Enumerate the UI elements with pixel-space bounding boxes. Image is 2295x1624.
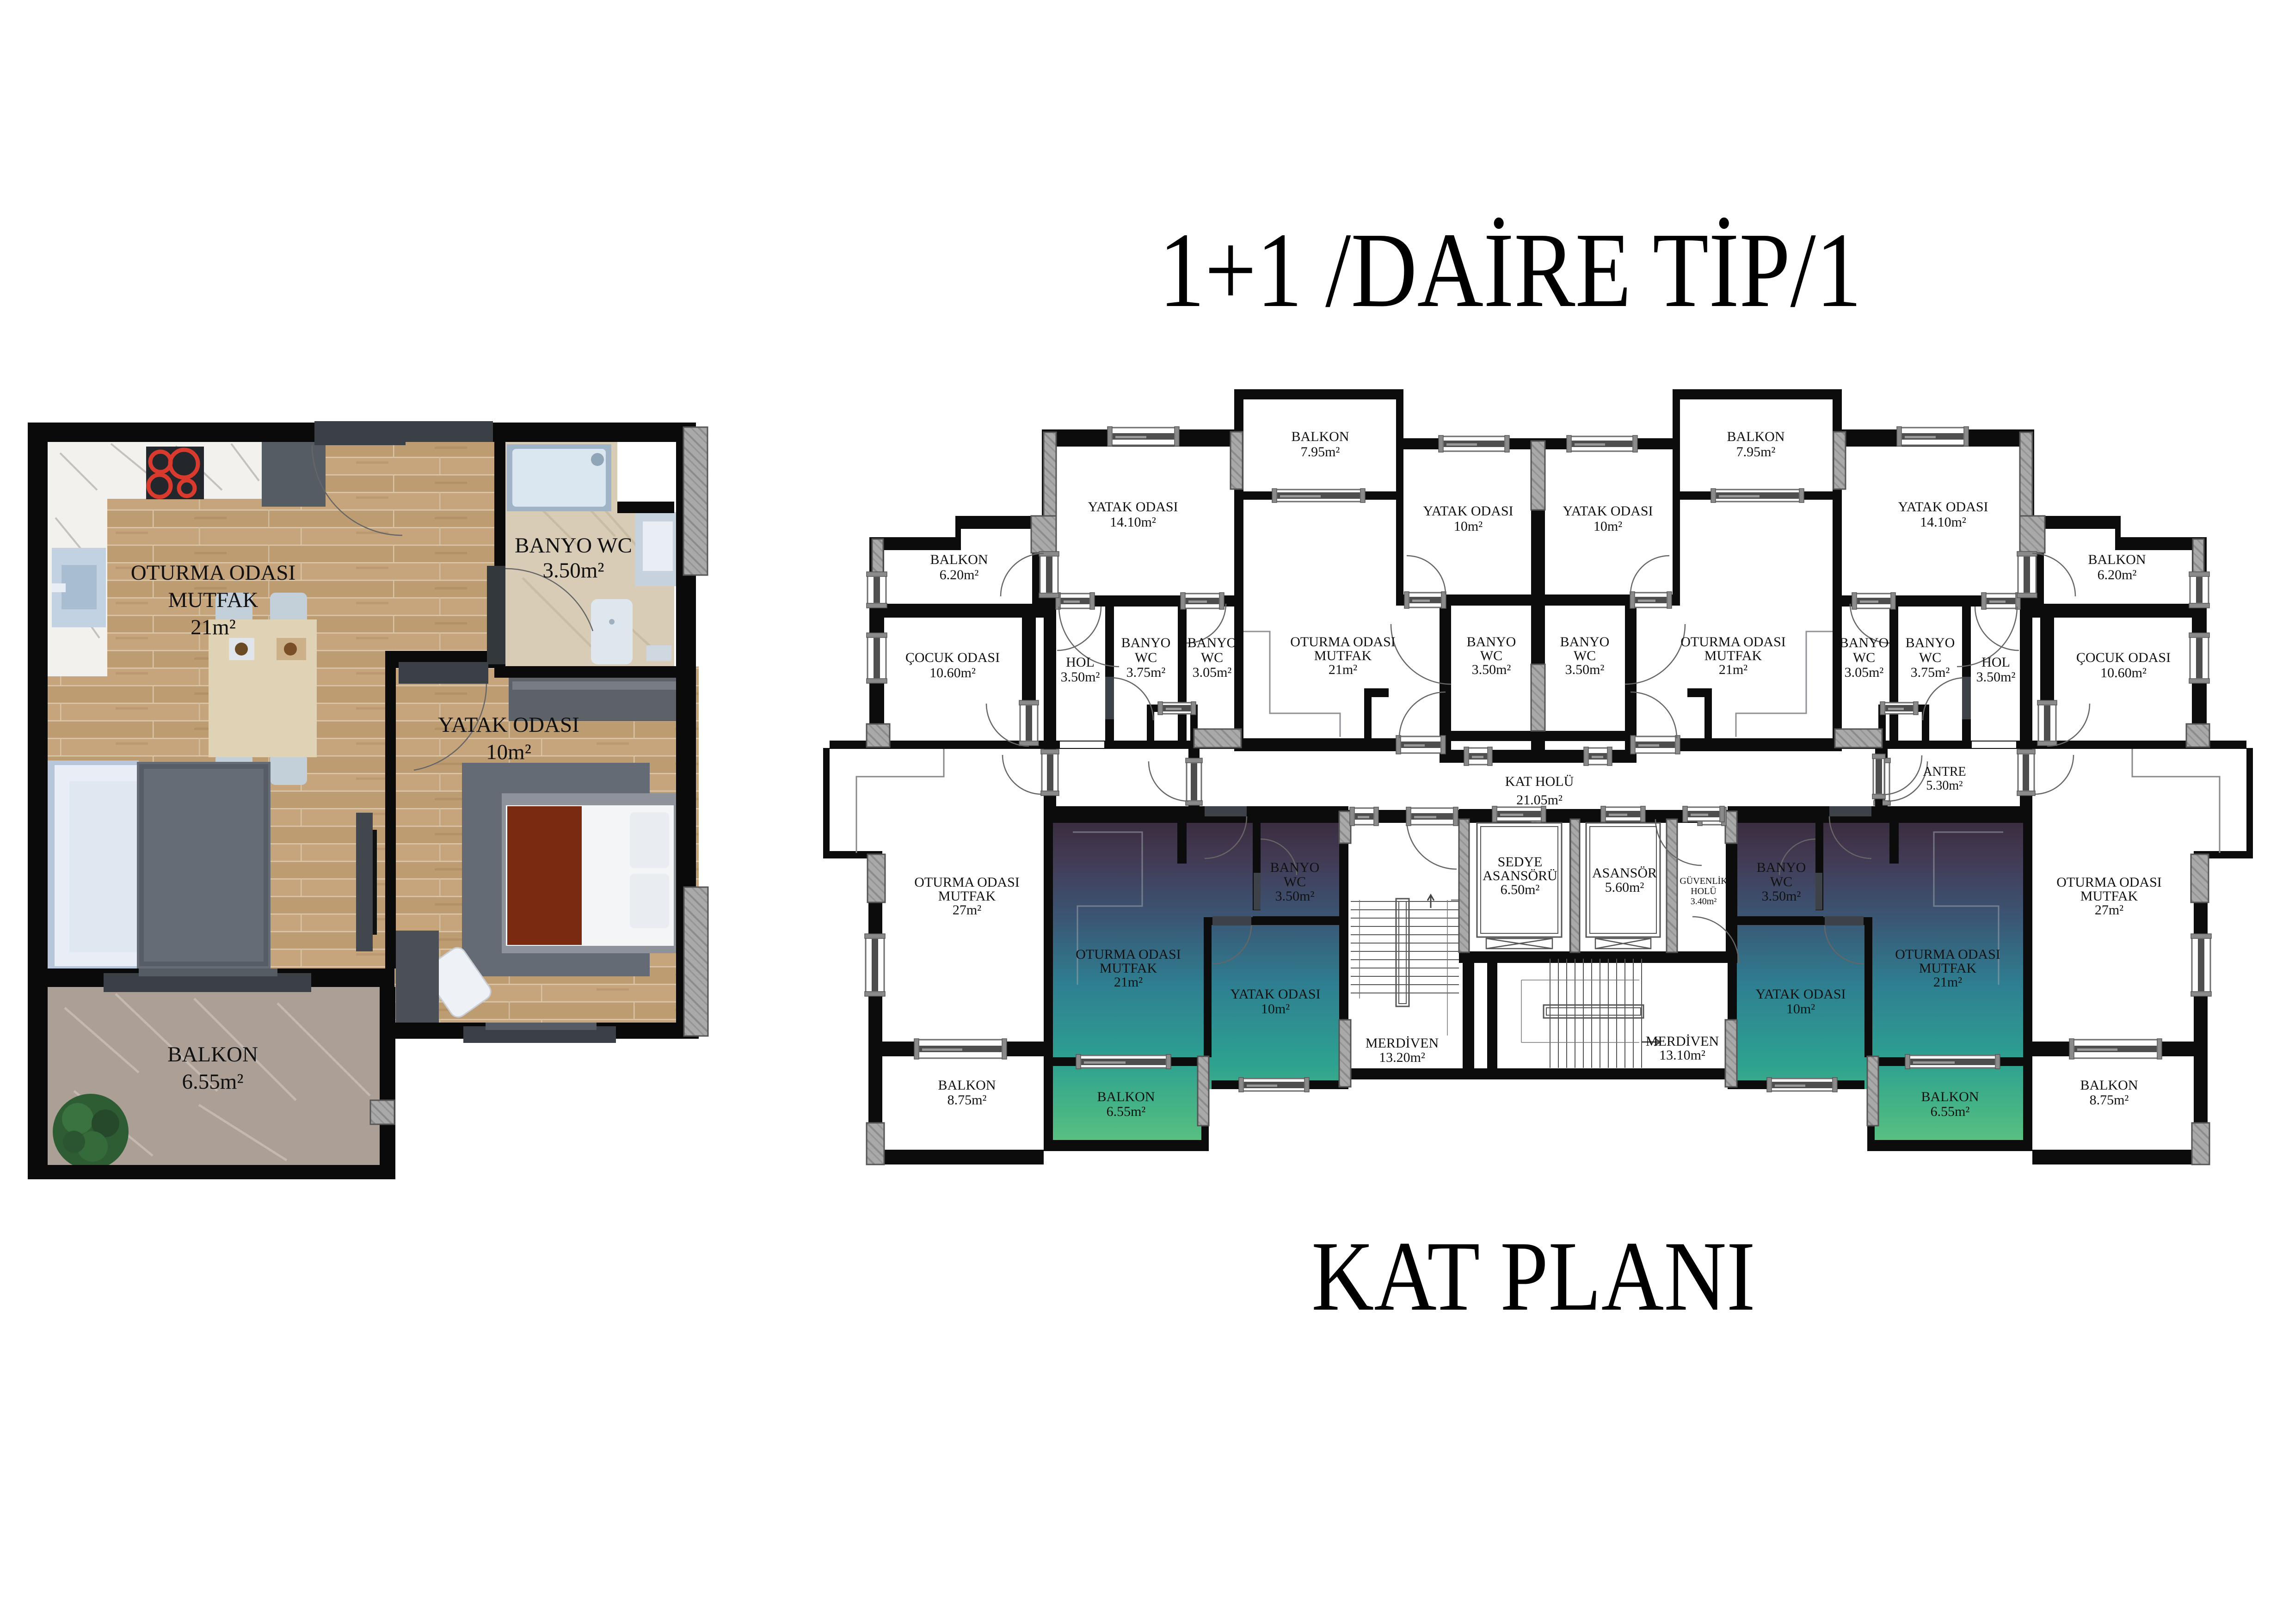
- svg-text:BALKON: BALKON: [167, 1042, 258, 1066]
- svg-text:BANYO: BANYO: [1840, 635, 1889, 650]
- svg-text:WC: WC: [1480, 648, 1502, 663]
- svg-text:WC: WC: [1574, 648, 1596, 663]
- svg-text:BALKON: BALKON: [1292, 429, 1349, 444]
- svg-text:MUTFAK: MUTFAK: [2080, 889, 2138, 904]
- svg-text:21m²: 21m²: [1933, 974, 1962, 990]
- svg-text:1+1 /DAİRE TİP/1: 1+1 /DAİRE TİP/1: [1159, 211, 1862, 330]
- svg-text:6.55m²: 6.55m²: [1931, 1104, 1970, 1119]
- svg-text:BANYO: BANYO: [1187, 635, 1237, 650]
- svg-text:BALKON: BALKON: [2088, 552, 2146, 567]
- svg-text:MUTFAK: MUTFAK: [1704, 648, 1762, 663]
- svg-text:21m²: 21m²: [1114, 974, 1143, 990]
- svg-text:WC: WC: [1770, 874, 1792, 889]
- svg-text:YATAK ODASI: YATAK ODASI: [1755, 987, 1846, 1002]
- svg-text:BALKON: BALKON: [930, 552, 988, 567]
- svg-text:YATAK ODASI: YATAK ODASI: [438, 713, 579, 737]
- svg-text:MUTFAK: MUTFAK: [938, 889, 996, 904]
- svg-text:21m²: 21m²: [1719, 662, 1747, 677]
- svg-text:10m²: 10m²: [1594, 519, 1622, 534]
- svg-text:OTURMA ODASI: OTURMA ODASI: [1290, 634, 1396, 650]
- svg-text:13.10m²: 13.10m²: [1659, 1048, 1705, 1063]
- svg-text:3.75m²: 3.75m²: [1126, 665, 1166, 680]
- svg-text:KAT HOLÜ: KAT HOLÜ: [1505, 774, 1574, 789]
- svg-text:10m²: 10m²: [1454, 519, 1483, 534]
- svg-text:OTURMA ODASI: OTURMA ODASI: [1076, 947, 1181, 962]
- svg-text:BALKON: BALKON: [2080, 1078, 2138, 1093]
- svg-text:3.05m²: 3.05m²: [1193, 665, 1232, 680]
- svg-text:HOL: HOL: [1981, 655, 2010, 670]
- svg-text:BANYO: BANYO: [1906, 635, 1955, 650]
- svg-text:OTURMA ODASI: OTURMA ODASI: [2056, 875, 2162, 890]
- svg-text:WC: WC: [1853, 650, 1875, 665]
- svg-text:OTURMA ODASI: OTURMA ODASI: [1895, 947, 2000, 962]
- svg-text:WC: WC: [1201, 650, 1223, 665]
- svg-text:MERDİVEN: MERDİVEN: [1646, 1034, 1719, 1049]
- svg-text:6.20m²: 6.20m²: [940, 567, 979, 582]
- svg-text:KAT PLANI: KAT PLANI: [1311, 1221, 1755, 1331]
- svg-text:8.75m²: 8.75m²: [948, 1092, 987, 1108]
- svg-text:MUTFAK: MUTFAK: [1919, 961, 1977, 976]
- svg-text:ANTRE: ANTRE: [1923, 765, 1966, 779]
- svg-text:BANYO: BANYO: [1270, 860, 1320, 875]
- svg-text:5.60m²: 5.60m²: [1605, 880, 1644, 895]
- svg-text:BALKON: BALKON: [938, 1078, 996, 1093]
- svg-text:OTURMA ODASI: OTURMA ODASI: [1680, 634, 1786, 650]
- svg-text:10.60m²: 10.60m²: [929, 665, 976, 680]
- svg-text:WC: WC: [1284, 874, 1306, 889]
- svg-text:3.50m²: 3.50m²: [1275, 889, 1315, 904]
- svg-text:MUTFAK: MUTFAK: [168, 588, 258, 612]
- svg-text:BANYO: BANYO: [1467, 634, 1516, 650]
- svg-text:3.40m²: 3.40m²: [1691, 896, 1717, 907]
- svg-text:3.50m²: 3.50m²: [1061, 669, 1100, 685]
- svg-text:ÇOCUK ODASI: ÇOCUK ODASI: [2076, 650, 2171, 665]
- svg-text:ASANSÖR: ASANSÖR: [1592, 865, 1657, 881]
- svg-text:21m²: 21m²: [1329, 662, 1357, 677]
- svg-text:MERDİVEN: MERDİVEN: [1366, 1036, 1439, 1051]
- svg-text:YATAK ODASI: YATAK ODASI: [1898, 499, 1988, 515]
- svg-text:GÜVENLİK: GÜVENLİK: [1680, 876, 1728, 886]
- svg-text:BALKON: BALKON: [1727, 429, 1785, 444]
- svg-text:WC: WC: [1135, 650, 1157, 665]
- svg-text:BALKON: BALKON: [1921, 1089, 1979, 1104]
- svg-text:HOL: HOL: [1066, 655, 1095, 670]
- svg-text:5.30m²: 5.30m²: [1926, 778, 1963, 793]
- svg-text:YATAK ODASI: YATAK ODASI: [1423, 503, 1513, 519]
- svg-text:YATAK ODASI: YATAK ODASI: [1088, 499, 1178, 515]
- svg-text:BALKON: BALKON: [1097, 1089, 1155, 1104]
- svg-text:7.95m²: 7.95m²: [1736, 444, 1776, 460]
- svg-text:13.20m²: 13.20m²: [1379, 1050, 1425, 1065]
- svg-text:3.75m²: 3.75m²: [1911, 665, 1950, 680]
- svg-text:YATAK ODASI: YATAK ODASI: [1230, 987, 1320, 1002]
- svg-text:BANYO: BANYO: [1121, 635, 1171, 650]
- svg-text:SEDYE: SEDYE: [1498, 854, 1543, 870]
- svg-text:14.10m²: 14.10m²: [1110, 515, 1156, 530]
- svg-text:BANYO: BANYO: [1757, 860, 1806, 875]
- svg-text:3.05m²: 3.05m²: [1845, 665, 1884, 680]
- svg-text:OTURMA ODASI: OTURMA ODASI: [131, 561, 295, 585]
- svg-text:BANYO: BANYO: [1560, 634, 1610, 650]
- svg-text:3.50m²: 3.50m²: [1976, 669, 2016, 685]
- svg-text:6.55m²: 6.55m²: [182, 1070, 244, 1094]
- svg-text:27m²: 27m²: [953, 902, 981, 918]
- svg-text:8.75m²: 8.75m²: [2090, 1092, 2129, 1108]
- svg-text:6.50m²: 6.50m²: [1501, 882, 1540, 897]
- svg-text:ASANSÖRÜ: ASANSÖRÜ: [1483, 868, 1557, 883]
- svg-text:6.55m²: 6.55m²: [1107, 1104, 1146, 1119]
- svg-text:BANYO WC: BANYO WC: [515, 533, 632, 558]
- svg-text:OTURMA ODASI: OTURMA ODASI: [914, 875, 1020, 890]
- svg-text:27m²: 27m²: [2095, 902, 2123, 918]
- svg-text:14.10m²: 14.10m²: [1920, 515, 1966, 530]
- svg-text:MUTFAK: MUTFAK: [1314, 648, 1372, 663]
- svg-text:YATAK ODASI: YATAK ODASI: [1563, 503, 1653, 519]
- svg-text:3.50m²: 3.50m²: [1565, 662, 1605, 677]
- svg-text:WC: WC: [1919, 650, 1941, 665]
- svg-text:21.05m²: 21.05m²: [1516, 792, 1563, 808]
- svg-text:3.50m²: 3.50m²: [1472, 662, 1511, 677]
- svg-text:10m²: 10m²: [486, 740, 531, 764]
- svg-text:MUTFAK: MUTFAK: [1100, 961, 1157, 976]
- svg-text:21m²: 21m²: [191, 615, 236, 639]
- svg-text:3.50m²: 3.50m²: [1762, 889, 1801, 904]
- svg-text:10m²: 10m²: [1786, 1001, 1815, 1017]
- svg-text:7.95m²: 7.95m²: [1301, 444, 1340, 460]
- svg-text:ÇOCUK ODASI: ÇOCUK ODASI: [905, 650, 1000, 665]
- svg-text:10m²: 10m²: [1261, 1001, 1290, 1017]
- svg-text:10.60m²: 10.60m²: [2100, 665, 2147, 680]
- svg-text:6.20m²: 6.20m²: [2098, 567, 2137, 582]
- svg-text:HOLÜ: HOLÜ: [1691, 886, 1717, 896]
- svg-text:3.50m²: 3.50m²: [543, 558, 604, 582]
